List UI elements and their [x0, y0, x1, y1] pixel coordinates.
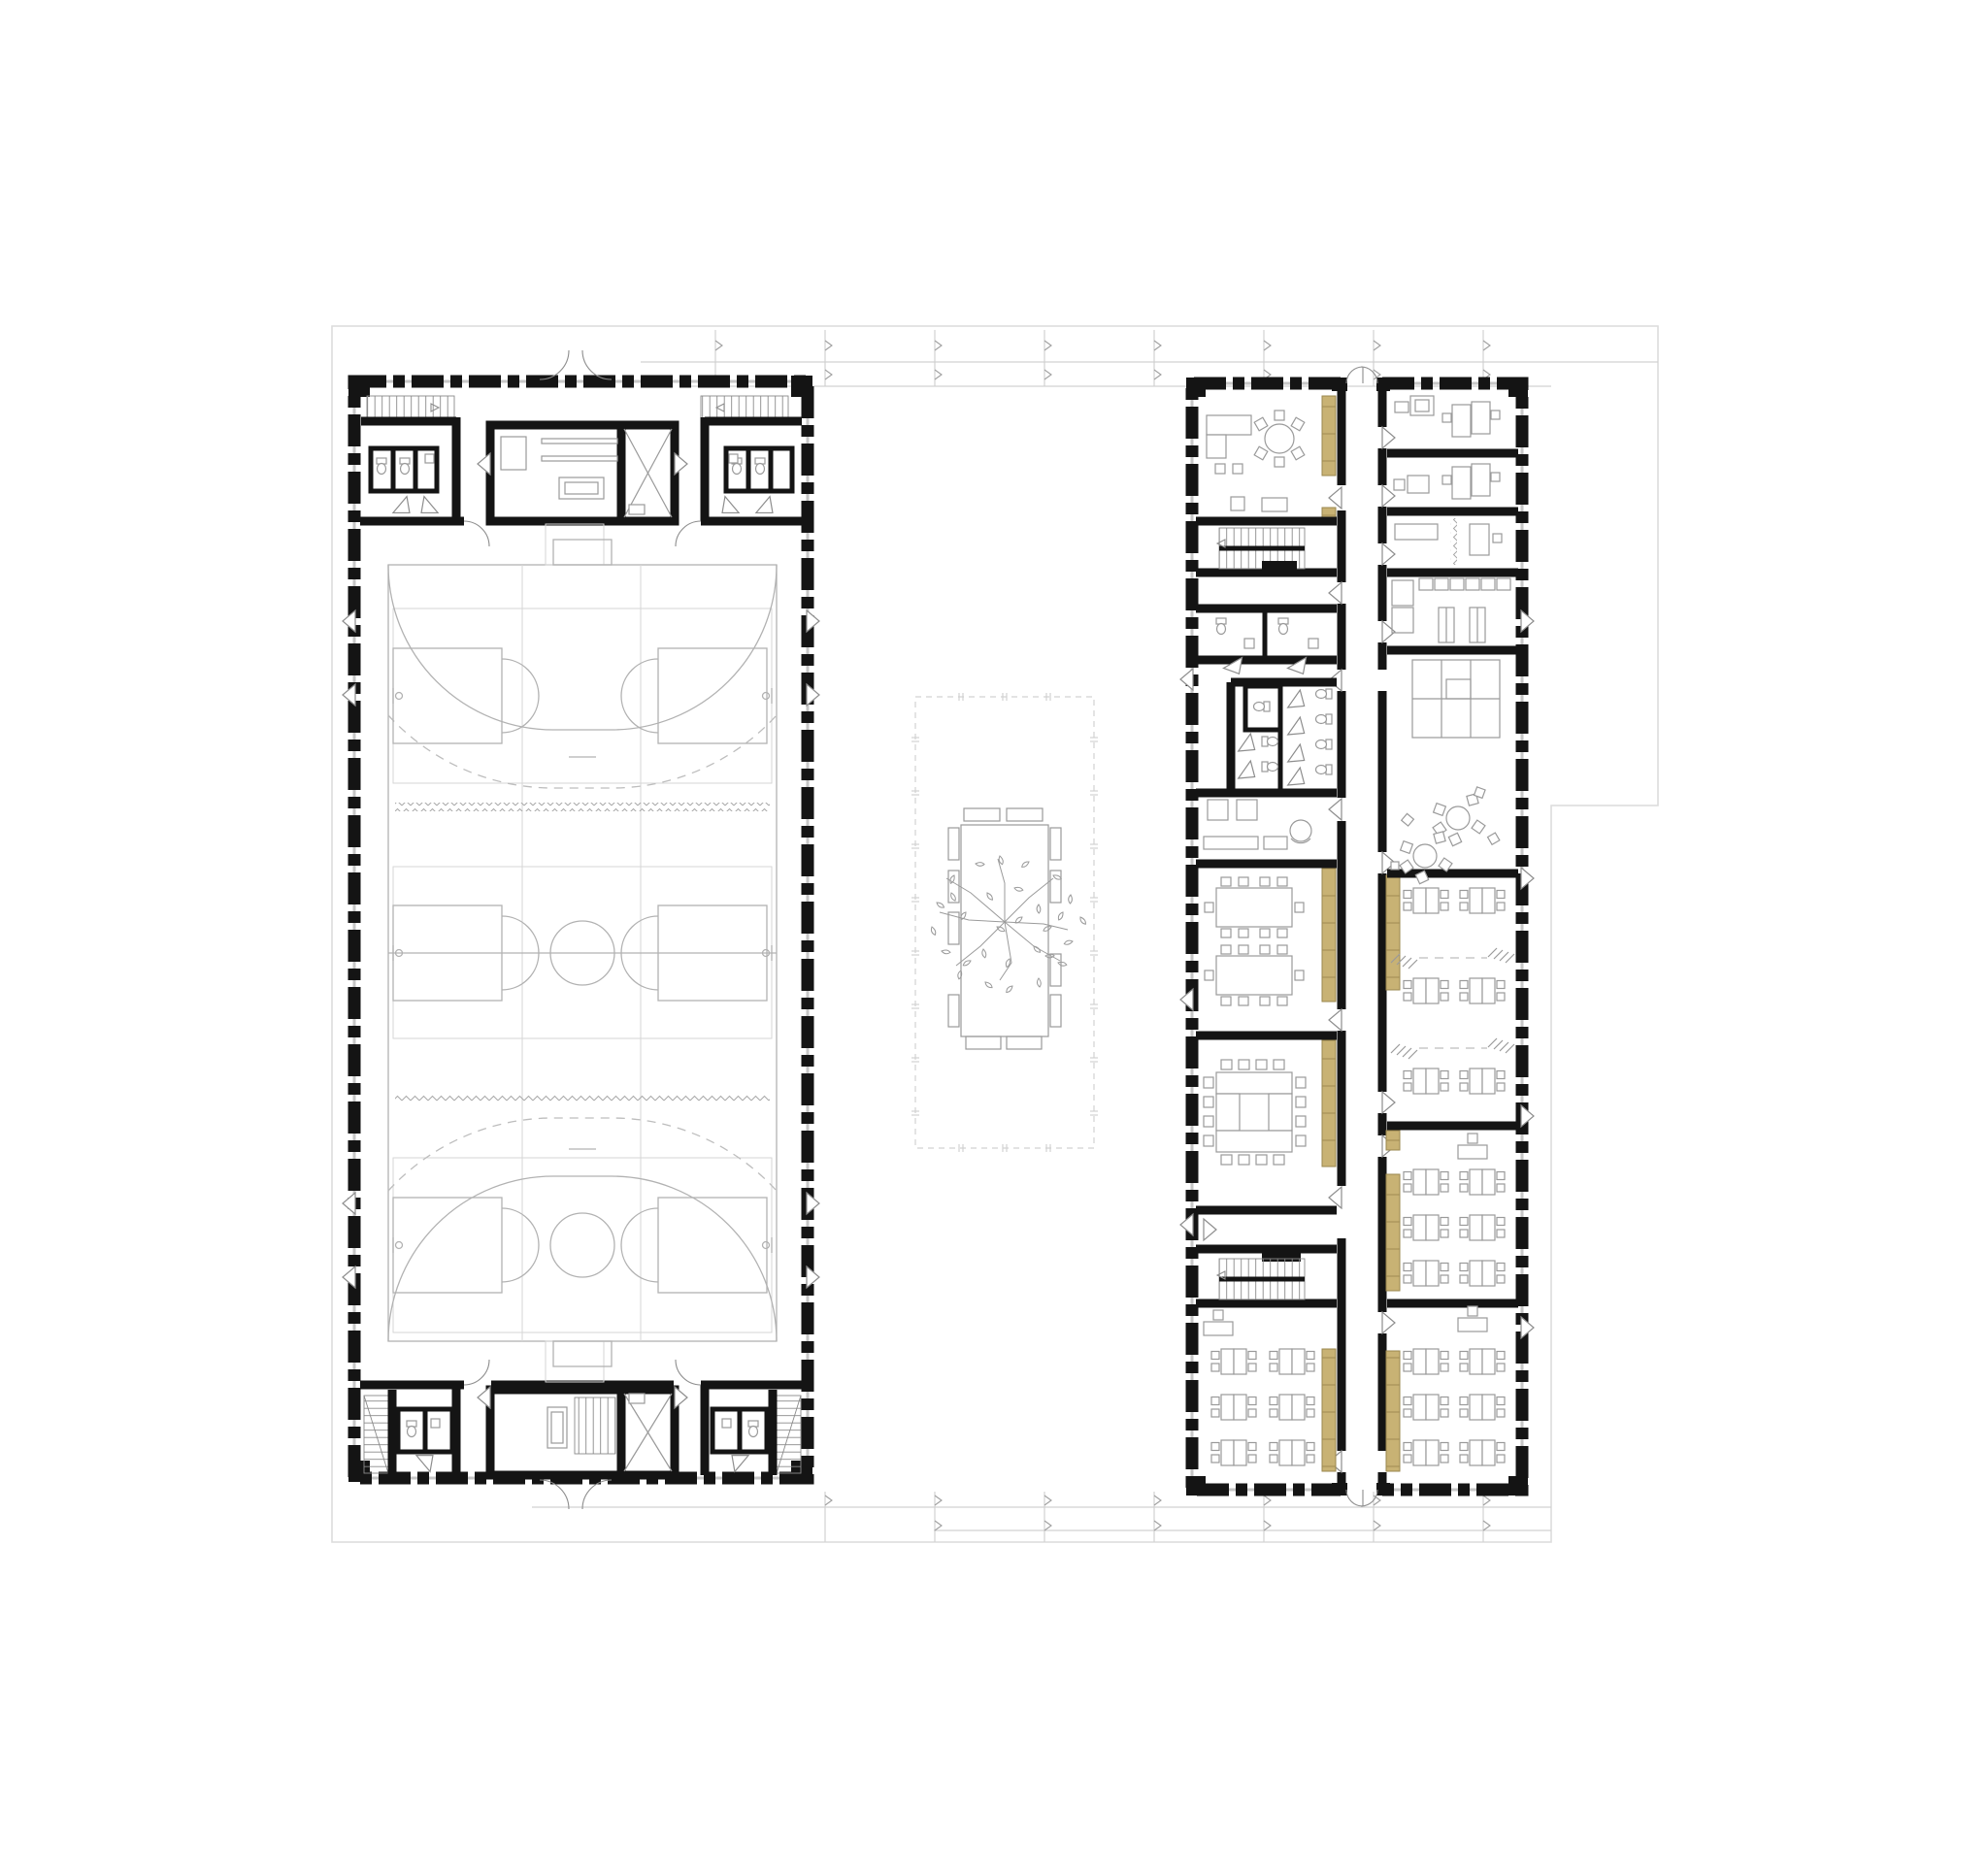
floor-plan-drawing: [0, 0, 1988, 1874]
hall-facade-wall: [354, 381, 808, 1478]
seminar-room-2: [1204, 1060, 1306, 1165]
stair-top-left: [367, 396, 454, 419]
shaft-bottom: [624, 1394, 672, 1471]
staircase-north: [1217, 528, 1305, 573]
entrance-double-door-south: [1346, 1490, 1377, 1506]
basketball-hoops: [393, 688, 772, 1253]
hall-facade-exit-doors: [343, 610, 819, 1288]
entrance-double-door-north: [1346, 367, 1377, 383]
hall-corner-anchors: [348, 376, 812, 1482]
classroom-west: [1204, 1310, 1314, 1465]
staircase-south: [1217, 1249, 1305, 1299]
classroom-3: [1404, 1306, 1505, 1465]
courtyard-tree: [931, 856, 1087, 994]
shaft-top: [624, 429, 672, 517]
locker-room-top-right: [705, 417, 802, 521]
kitchenette: [1392, 578, 1510, 642]
locker-room-bottom-right: [705, 1385, 773, 1475]
court-alcove-bottom: [546, 1341, 604, 1382]
stair-top-right: [701, 396, 788, 419]
lounge: [1204, 800, 1311, 849]
stair-bottom-right: [777, 1396, 801, 1473]
seminar-room-1: [1205, 877, 1304, 1005]
hall-glazing: [354, 381, 808, 1478]
curtain-divider-2: [395, 1094, 770, 1102]
lobby: [1204, 1219, 1216, 1240]
court-alcove-top: [546, 524, 604, 565]
library-commons: [1391, 660, 1500, 884]
handball-goal-bottom: [388, 1118, 777, 1366]
corridor: [1329, 367, 1395, 1506]
office-1: [1395, 396, 1500, 437]
office-2: [1394, 464, 1500, 499]
school-building: [1180, 367, 1534, 1506]
equipment-room-top: [490, 425, 675, 521]
meeting-room: [1207, 411, 1305, 511]
courtyard: [911, 693, 1098, 1152]
wc-row: [1216, 608, 1318, 679]
cross-court-keys: [393, 648, 772, 1293]
equipment-room-bottom: [490, 1390, 675, 1475]
folding-partition-marks: [1391, 948, 1514, 1059]
locker-room-top-left: [361, 417, 456, 521]
curtain-divider-1: [395, 803, 770, 811]
handball-goal-top: [388, 540, 777, 788]
wc-stall-block: [1231, 682, 1337, 792]
walkway-grid-ticks: [715, 330, 1483, 386]
covered-walkway-bottom: [532, 1492, 1551, 1542]
classroom-1: [1391, 888, 1514, 1094]
locker-room-bottom-left: [392, 1385, 456, 1475]
walkway-grid-ticks-bottom: [825, 1492, 1483, 1542]
stair-bottom-left: [364, 1396, 388, 1473]
direction-chevrons-bottom: [825, 1496, 1490, 1530]
office-3: [1395, 518, 1502, 565]
hall-court-markings: [388, 524, 777, 1382]
classroom-2: [1404, 1134, 1505, 1286]
tree-foliage: [931, 856, 1087, 994]
sports-hall: [343, 350, 819, 1509]
floor-plan-canvas: [0, 0, 1988, 1874]
